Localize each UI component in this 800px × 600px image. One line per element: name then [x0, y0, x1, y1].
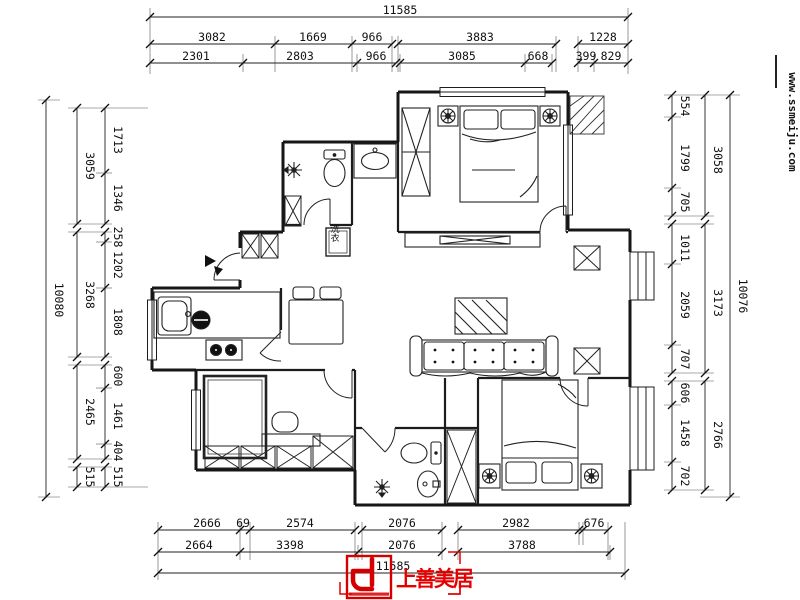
- dim-label: 2803: [286, 49, 314, 63]
- dim-label: 11585: [383, 3, 418, 17]
- bedroom-right-furniture: [479, 380, 602, 490]
- chair-icon: [320, 287, 341, 299]
- dim-label: 1202: [111, 251, 125, 279]
- ceiling-fan-icon: [284, 162, 302, 178]
- dim-label: 3883: [466, 30, 494, 44]
- dim-label: 2076: [388, 516, 416, 530]
- dim-label: 705: [678, 192, 692, 213]
- dim-label: 668: [528, 49, 549, 63]
- floor-plan-drawing: 洗衣: [0, 0, 800, 600]
- laundry-unit: 洗衣: [326, 223, 350, 256]
- toilet-icon: [324, 150, 345, 187]
- dim-label: 10080: [52, 283, 66, 318]
- dim-label: 829: [601, 49, 622, 63]
- door-swings: [214, 199, 588, 452]
- dining-set: [289, 287, 343, 344]
- dim-label: 3058: [711, 146, 725, 174]
- dim-label: 676: [584, 516, 605, 530]
- dim-label: 707: [678, 349, 692, 370]
- dim-label: 3059: [83, 152, 97, 180]
- wash-basin-icon: [418, 471, 441, 497]
- wardrobe-icon: [402, 108, 430, 196]
- chair-icon: [272, 412, 298, 432]
- dim-label: 966: [362, 30, 383, 44]
- dim-label: 2465: [83, 398, 97, 426]
- dimension-chains: 1158530821669966388312282301280396630856…: [38, 3, 750, 580]
- floor-drain-icon: [374, 479, 390, 497]
- dim-label: 515: [111, 467, 125, 488]
- dim-label: 69: [236, 516, 250, 530]
- dim-label: 404: [111, 441, 125, 462]
- toilet-icon: [401, 442, 441, 464]
- living-room-furniture: [405, 233, 558, 376]
- kitchen-fixtures: [154, 292, 280, 360]
- bathroom-top: [284, 144, 396, 187]
- dim-label: 3398: [276, 538, 304, 552]
- brand-mark-icon: [353, 559, 372, 589]
- dim-label: 2059: [678, 291, 692, 319]
- kitchen-sink-icon: [158, 297, 191, 335]
- floorplan-page: 洗衣: [0, 0, 800, 600]
- dim-label: 554: [678, 96, 692, 117]
- nightstand-lamp-icon: [438, 106, 458, 126]
- dim-label: 399: [576, 49, 597, 63]
- bathroom-bottom: [374, 442, 441, 497]
- laundry-label: 洗衣: [330, 223, 340, 243]
- dining-table-icon: [289, 300, 343, 344]
- dim-label: 606: [678, 383, 692, 404]
- dim-label: 2664: [185, 538, 213, 552]
- dim-label: 2076: [388, 538, 416, 552]
- desk-icon: [262, 434, 320, 446]
- sofa-icon: [410, 336, 558, 376]
- wash-basin-icon: [354, 144, 396, 178]
- dim-label: 3085: [448, 49, 476, 63]
- dim-label: 2766: [711, 421, 725, 449]
- dim-label: 1461: [111, 402, 125, 430]
- dim-label: 2982: [502, 516, 530, 530]
- coffee-table-icon: [455, 298, 507, 334]
- dim-label: 515: [83, 467, 97, 488]
- dim-label: 3268: [83, 281, 97, 309]
- dim-label: 2301: [182, 49, 210, 63]
- nightstand-lamp-icon: [479, 464, 500, 488]
- tv-cabinet-icon: [405, 233, 540, 247]
- dim-label: 1228: [589, 30, 617, 44]
- dim-label: 2666: [193, 516, 221, 530]
- brand-subtext-bar: [349, 593, 389, 596]
- nightstand-lamp-icon: [581, 464, 602, 488]
- dim-label: 10076: [736, 279, 750, 314]
- nightstand-lamp-icon: [540, 106, 560, 126]
- dim-label: 702: [678, 466, 692, 487]
- double-bed-icon: [460, 106, 538, 202]
- dim-label: 1458: [678, 419, 692, 447]
- dim-label: 966: [366, 49, 387, 63]
- watermark: www.ssmeiju.com: [776, 55, 799, 172]
- brand-name: 上善美居: [396, 567, 474, 591]
- master-bedroom-furniture: [402, 106, 560, 202]
- dim-label: 258: [111, 227, 125, 248]
- chair-icon: [293, 287, 314, 299]
- dim-label: 1669: [299, 30, 327, 44]
- stove-icon: [206, 340, 242, 360]
- hatched-platform: [570, 96, 604, 134]
- entry-arrow-icon: [205, 255, 223, 276]
- dim-label: 3082: [198, 30, 226, 44]
- dim-label: 2574: [286, 516, 314, 530]
- dim-label: 1011: [678, 234, 692, 262]
- dim-label: 1346: [111, 184, 125, 212]
- dim-label: 3173: [711, 289, 725, 317]
- watermark-url: www.ssmeiju.com: [786, 72, 799, 172]
- dim-label: 1713: [111, 126, 125, 154]
- dim-label: 1799: [678, 144, 692, 172]
- dim-label: 600: [111, 366, 125, 387]
- dim-label: 3788: [508, 538, 536, 552]
- dim-label: 1808: [111, 308, 125, 336]
